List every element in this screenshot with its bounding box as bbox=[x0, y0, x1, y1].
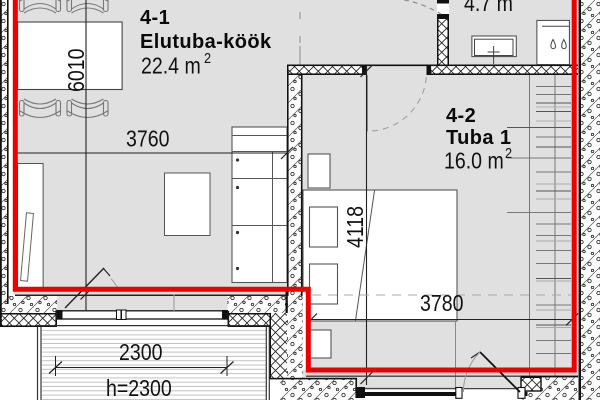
svg-text:4-1: 4-1 bbox=[140, 7, 170, 29]
svg-text:2: 2 bbox=[505, 144, 512, 161]
svg-text:4.7 m: 4.7 m bbox=[464, 0, 513, 16]
svg-text:6010: 6010 bbox=[64, 48, 90, 92]
svg-text:4-2: 4-2 bbox=[446, 105, 476, 127]
svg-text:h=2300: h=2300 bbox=[106, 376, 172, 400]
svg-text:22.4 m: 22.4 m bbox=[141, 53, 201, 79]
svg-text:2: 2 bbox=[204, 49, 211, 66]
svg-text:16.0 m: 16.0 m bbox=[444, 148, 504, 174]
svg-text:4118: 4118 bbox=[343, 206, 369, 248]
svg-text:3760: 3760 bbox=[126, 126, 170, 152]
svg-text:Tuba 1: Tuba 1 bbox=[446, 127, 511, 149]
svg-text:2300: 2300 bbox=[119, 340, 163, 366]
svg-text:3780: 3780 bbox=[420, 291, 464, 317]
